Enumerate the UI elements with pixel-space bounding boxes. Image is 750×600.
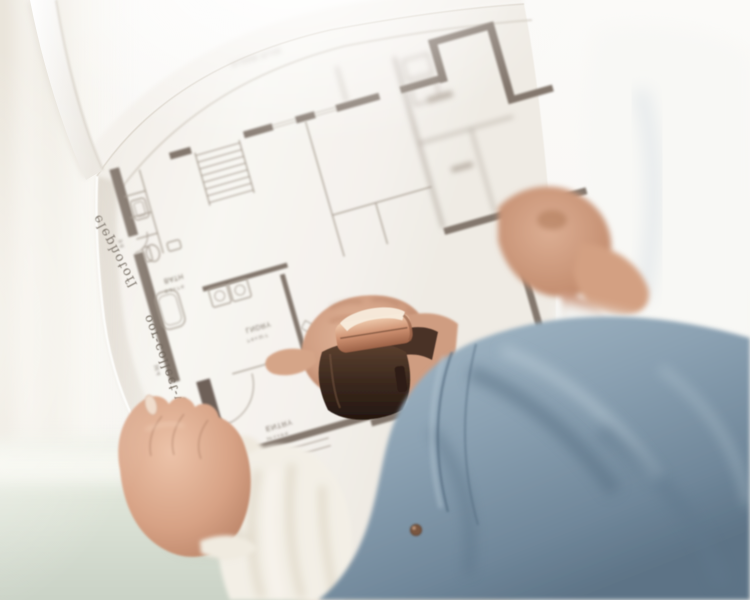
- cuff-button: [411, 525, 422, 536]
- paper-curl: [30, 0, 103, 180]
- scene-art: BATH 5'-3 x 7'-6 LNDRY 7'-6 x 11'-7 ENTR…: [0, 0, 750, 600]
- photo-scene: BATH 5'-3 x 7'-6 LNDRY 7'-6 x 11'-7 ENTR…: [0, 0, 750, 600]
